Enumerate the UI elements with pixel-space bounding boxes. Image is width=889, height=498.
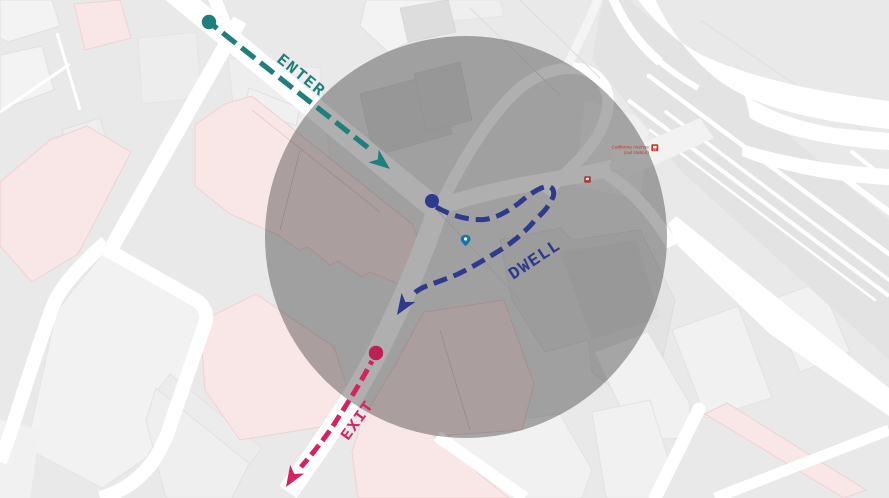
svg-text:(rail station): (rail station) <box>624 150 649 156</box>
svg-text:California Avenue: California Avenue <box>611 145 649 151</box>
